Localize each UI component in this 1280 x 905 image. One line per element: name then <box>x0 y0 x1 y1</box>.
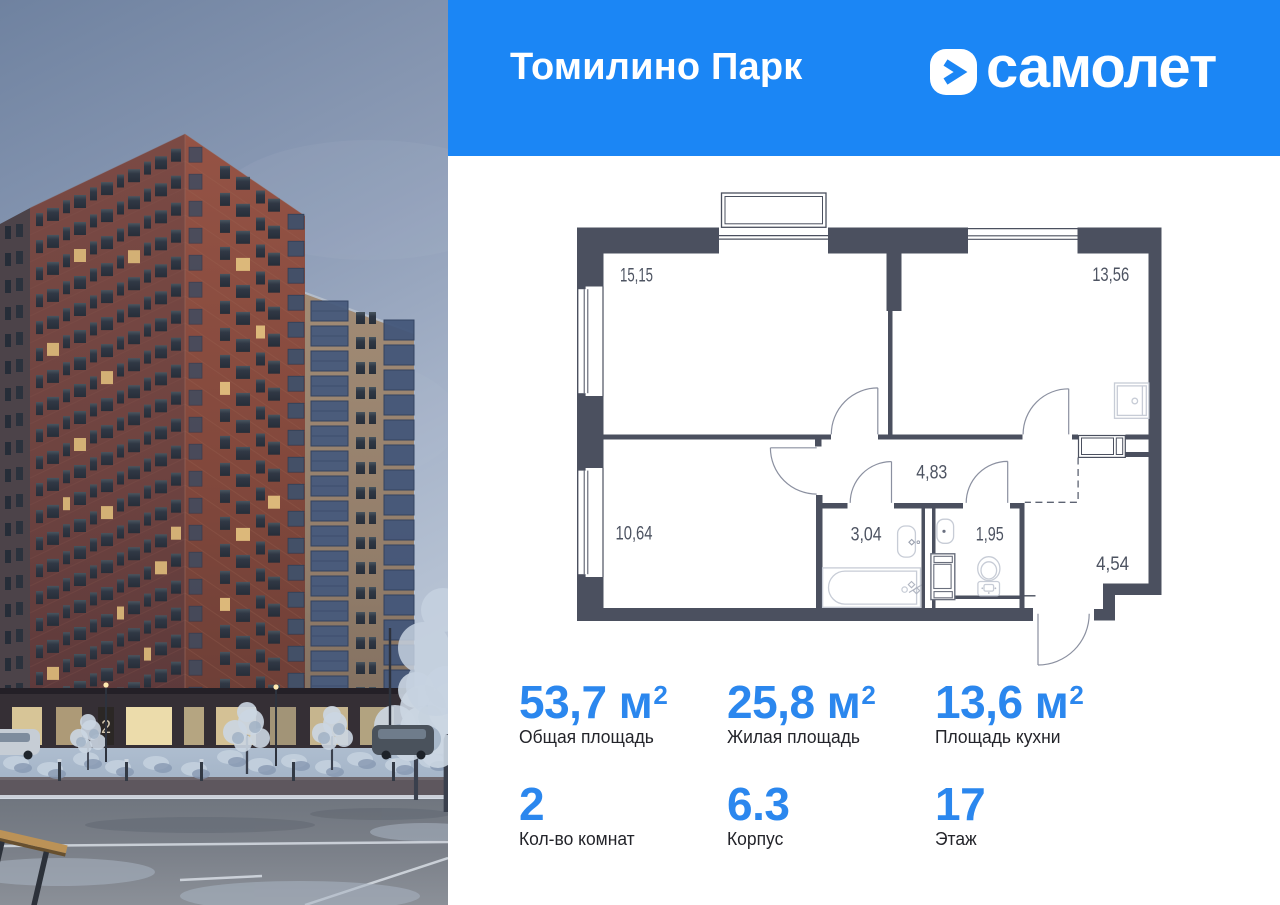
svg-text:15,15: 15,15 <box>620 266 653 287</box>
svg-text:10,64: 10,64 <box>616 523 653 544</box>
svg-text:4,54: 4,54 <box>1096 554 1129 575</box>
svg-text:4,83: 4,83 <box>916 463 947 484</box>
svg-text:1,95: 1,95 <box>976 524 1004 545</box>
svg-text:13,56: 13,56 <box>1092 265 1129 286</box>
svg-text:3,04: 3,04 <box>851 524 882 545</box>
